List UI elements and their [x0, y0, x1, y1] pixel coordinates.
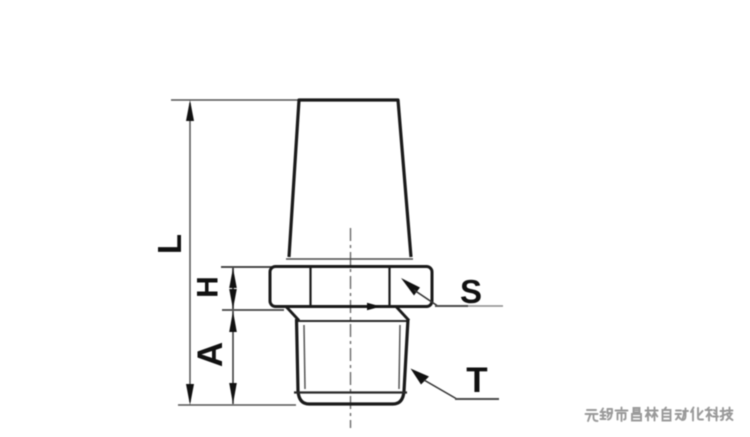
svg-text:T: T [466, 361, 487, 400]
svg-text:A: A [191, 342, 230, 367]
svg-text:L: L [151, 234, 188, 254]
svg-text:S: S [460, 273, 482, 310]
svg-text:H: H [192, 276, 225, 298]
